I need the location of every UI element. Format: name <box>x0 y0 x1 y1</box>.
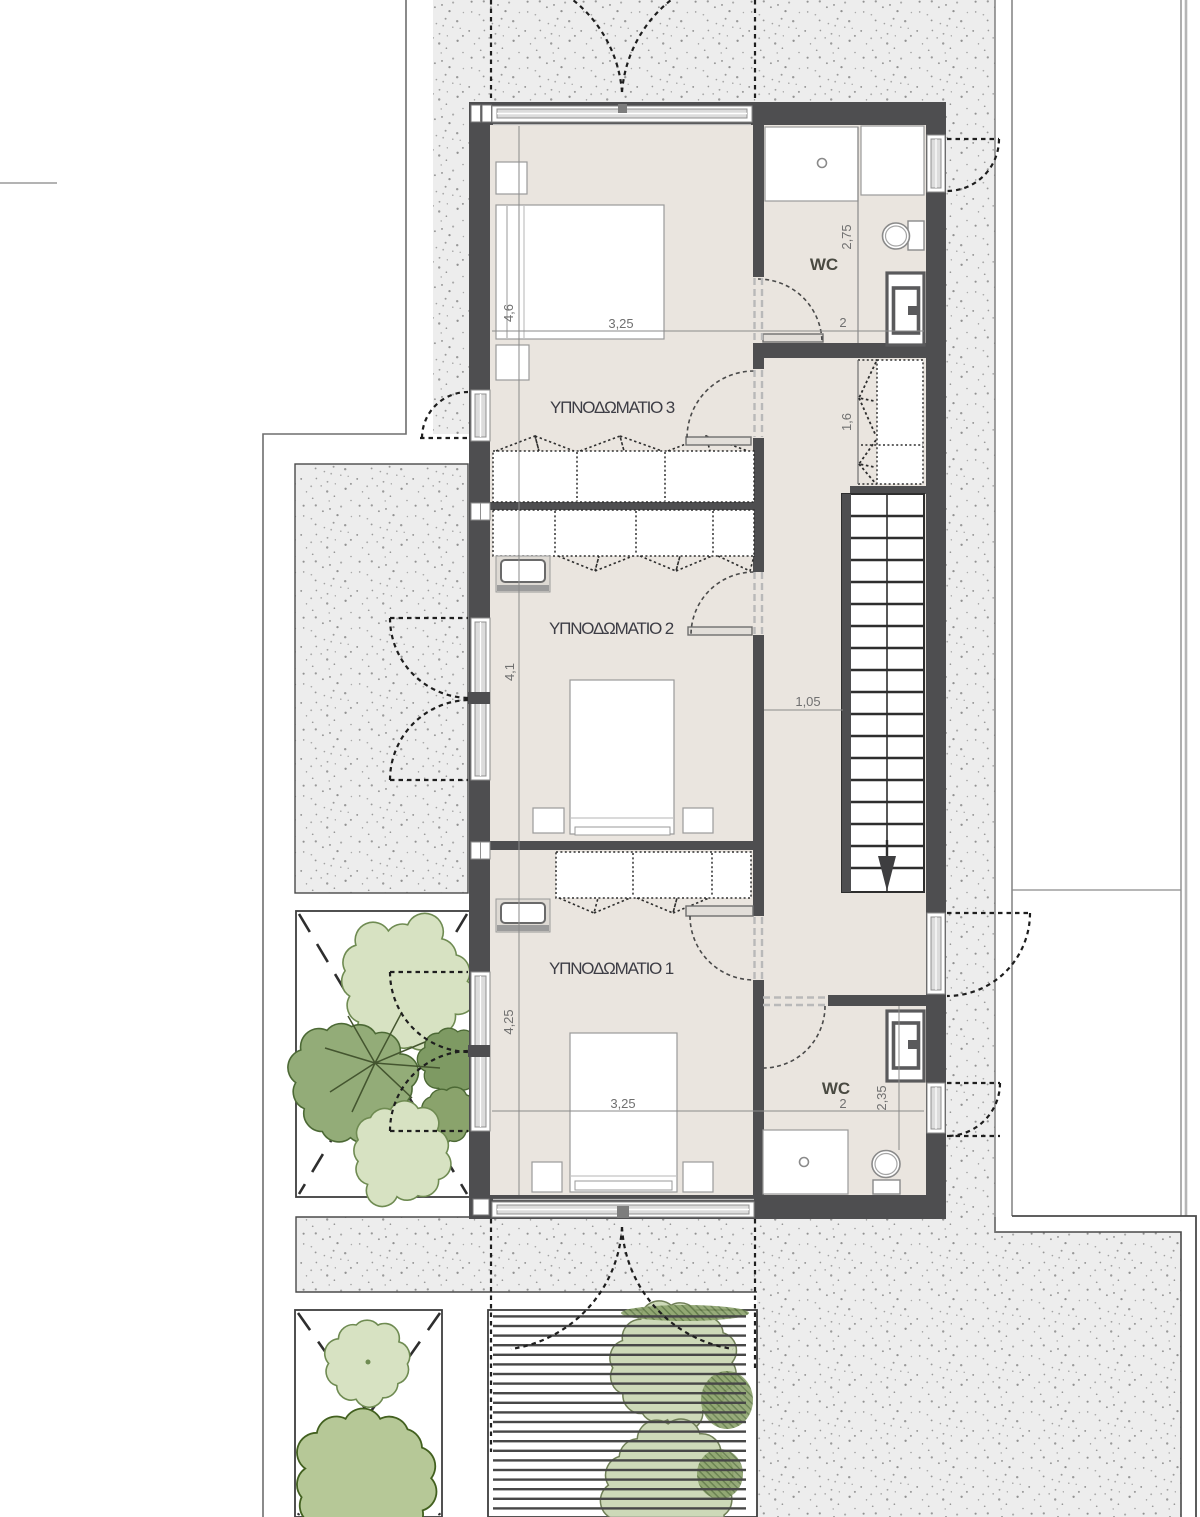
svg-text:ΥΠΝΟΔΩΜΑΤΙΟ 1: ΥΠΝΟΔΩΜΑΤΙΟ 1 <box>549 959 674 978</box>
svg-text:2: 2 <box>839 1096 846 1111</box>
svg-text:4,25: 4,25 <box>501 1009 516 1034</box>
svg-text:2,35: 2,35 <box>874 1085 889 1110</box>
svg-text:1,6: 1,6 <box>839 413 854 431</box>
svg-text:4,1: 4,1 <box>502 663 517 681</box>
svg-text:ΥΠΝΟΔΩΜΑΤΙΟ 2: ΥΠΝΟΔΩΜΑΤΙΟ 2 <box>549 619 674 638</box>
svg-text:1,05: 1,05 <box>795 694 820 709</box>
svg-text:WC: WC <box>810 255 838 274</box>
svg-text:2,75: 2,75 <box>839 224 854 249</box>
svg-text:3,25: 3,25 <box>610 1096 635 1111</box>
svg-text:2: 2 <box>839 315 846 330</box>
svg-text:4,6: 4,6 <box>501 304 516 322</box>
svg-text:3,25: 3,25 <box>608 316 633 331</box>
svg-text:ΥΠΝΟΔΩΜΑΤΙΟ 3: ΥΠΝΟΔΩΜΑΤΙΟ 3 <box>550 398 675 417</box>
